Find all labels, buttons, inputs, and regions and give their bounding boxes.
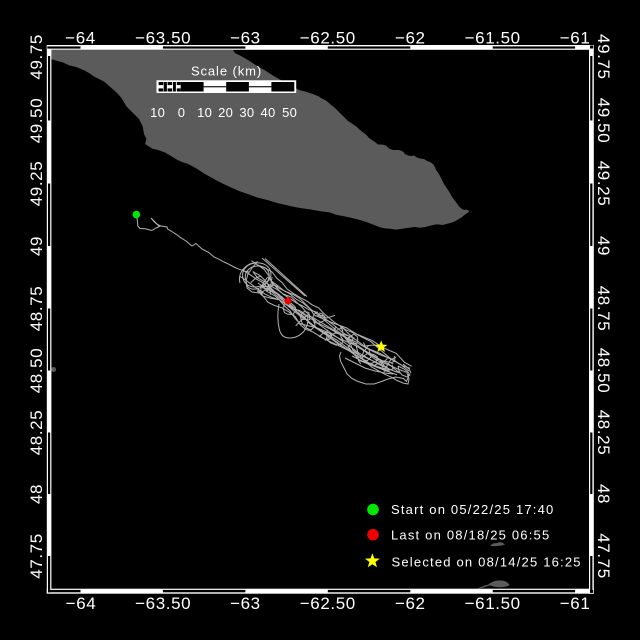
svg-text:48.75: 48.75 xyxy=(27,286,46,332)
svg-text:Scale (km): Scale (km) xyxy=(191,64,262,79)
svg-text:−62: −62 xyxy=(395,29,426,48)
svg-text:49.75: 49.75 xyxy=(594,34,613,80)
svg-text:30: 30 xyxy=(239,105,254,120)
svg-text:48.75: 48.75 xyxy=(594,286,613,332)
svg-text:10: 10 xyxy=(197,105,212,120)
svg-text:48: 48 xyxy=(594,484,613,504)
svg-text:49.75: 49.75 xyxy=(27,34,46,80)
svg-text:−64: −64 xyxy=(65,29,96,48)
svg-text:0: 0 xyxy=(178,105,186,120)
svg-text:49.25: 49.25 xyxy=(594,161,613,207)
svg-text:50: 50 xyxy=(282,105,297,120)
svg-text:48.50: 48.50 xyxy=(27,348,46,394)
svg-text:−62.50: −62.50 xyxy=(300,594,356,613)
svg-text:−61.50: −61.50 xyxy=(465,29,521,48)
svg-text:47.75: 47.75 xyxy=(27,533,46,579)
svg-text:−63.50: −63.50 xyxy=(135,594,191,613)
svg-text:−61: −61 xyxy=(560,29,591,48)
svg-text:−61: −61 xyxy=(560,594,591,613)
svg-text:10: 10 xyxy=(150,105,165,120)
svg-text:Last on 08/18/25 06:55: Last on 08/18/25 06:55 xyxy=(391,528,550,543)
svg-text:Start on 05/22/25 17:40: Start on 05/22/25 17:40 xyxy=(391,502,554,517)
svg-text:47.75: 47.75 xyxy=(594,533,613,579)
svg-text:49: 49 xyxy=(594,236,613,256)
svg-text:48.25: 48.25 xyxy=(594,410,613,456)
svg-text:40: 40 xyxy=(260,105,275,120)
svg-text:−62.50: −62.50 xyxy=(300,29,356,48)
svg-text:49.25: 49.25 xyxy=(27,161,46,207)
svg-text:−63: −63 xyxy=(230,29,261,48)
svg-text:−64: −64 xyxy=(66,594,97,613)
svg-text:49.50: 49.50 xyxy=(594,98,613,144)
svg-text:48.50: 48.50 xyxy=(594,348,613,394)
svg-text:20: 20 xyxy=(218,105,233,120)
svg-text:49: 49 xyxy=(27,236,46,256)
svg-text:48.25: 48.25 xyxy=(27,410,46,456)
svg-text:49.50: 49.50 xyxy=(27,98,46,144)
svg-text:−63: −63 xyxy=(230,594,261,613)
svg-text:48: 48 xyxy=(27,484,46,504)
svg-text:−63.50: −63.50 xyxy=(135,29,191,48)
svg-text:−62: −62 xyxy=(395,594,426,613)
svg-text:Selected on 08/14/25 16:25: Selected on 08/14/25 16:25 xyxy=(392,554,582,569)
svg-text:−61.50: −61.50 xyxy=(465,594,521,613)
